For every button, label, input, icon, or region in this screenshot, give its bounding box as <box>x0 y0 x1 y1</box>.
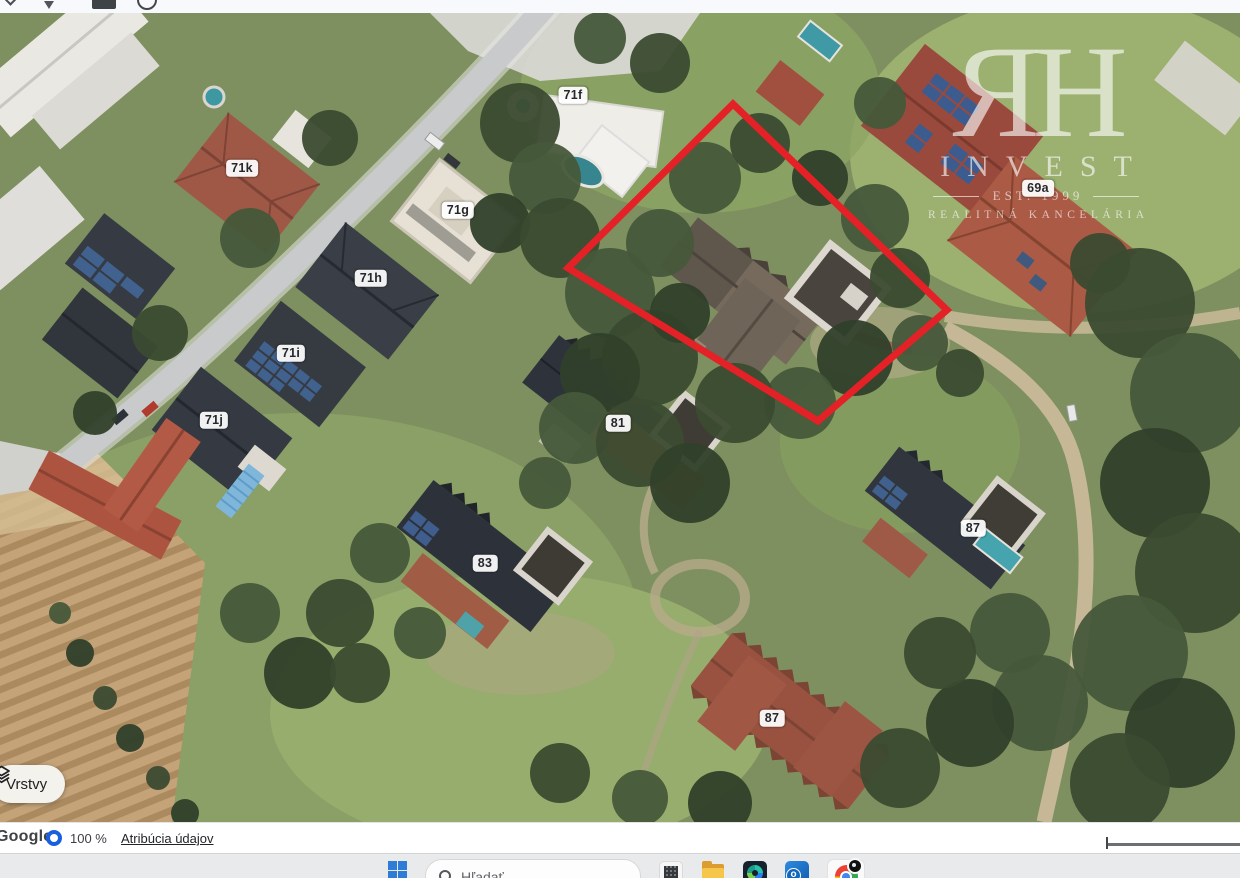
house-number-label: 71h <box>355 270 387 287</box>
chrome-taskbar-button[interactable] <box>827 859 865 878</box>
house-number-label: 71j <box>200 412 228 429</box>
house-number-label: 71g <box>442 202 474 219</box>
satellite-map-canvas[interactable]: ЯH INVEST EST. 1999 REALITNÁ KANCELÁRIA … <box>0 13 1240 822</box>
layers-button[interactable]: Vrstvy <box>0 765 65 803</box>
house-number-label: 87 <box>760 710 785 727</box>
house-number-label: 83 <box>473 555 498 572</box>
house-number-label: 71i <box>277 345 305 362</box>
browser-toolbar-strip <box>0 0 1240 13</box>
windows-start-icon[interactable] <box>388 861 407 878</box>
zoom-level: 100 % <box>70 831 107 846</box>
windows-taskbar: Hľadať <box>0 853 1240 878</box>
panel-icon[interactable] <box>92 0 116 9</box>
house-number-label: 81 <box>606 415 631 432</box>
data-attribution-link[interactable]: Atribúcia údajov <box>121 831 214 846</box>
map-scale-tick <box>1106 837 1108 849</box>
taskbar-search-input[interactable]: Hľadať <box>425 859 641 878</box>
house-number-label: 71k <box>226 160 258 177</box>
house-number-label: 71f <box>559 87 588 104</box>
outlook-icon[interactable] <box>785 861 809 878</box>
file-explorer-icon[interactable] <box>701 861 725 878</box>
photos-app-icon[interactable] <box>743 861 767 878</box>
chevron-down-icon[interactable] <box>1 0 19 6</box>
map-scale-bar <box>1106 843 1240 846</box>
google-logo[interactable]: Google <box>0 828 52 846</box>
zoom-ring-icon <box>46 830 62 846</box>
snipping-app-icon[interactable] <box>659 861 683 878</box>
layers-icon <box>0 765 11 784</box>
map-status-bar: Google 100 % Atribúcia údajov <box>0 822 1240 853</box>
pin-icon[interactable] <box>44 1 54 9</box>
layers-button-label: Vrstvy <box>6 776 47 793</box>
chrome-notification-badge <box>847 858 863 874</box>
house-number-label: 69a <box>1022 180 1054 197</box>
clock-icon[interactable] <box>137 0 157 10</box>
house-number-label: 87 <box>961 520 986 537</box>
